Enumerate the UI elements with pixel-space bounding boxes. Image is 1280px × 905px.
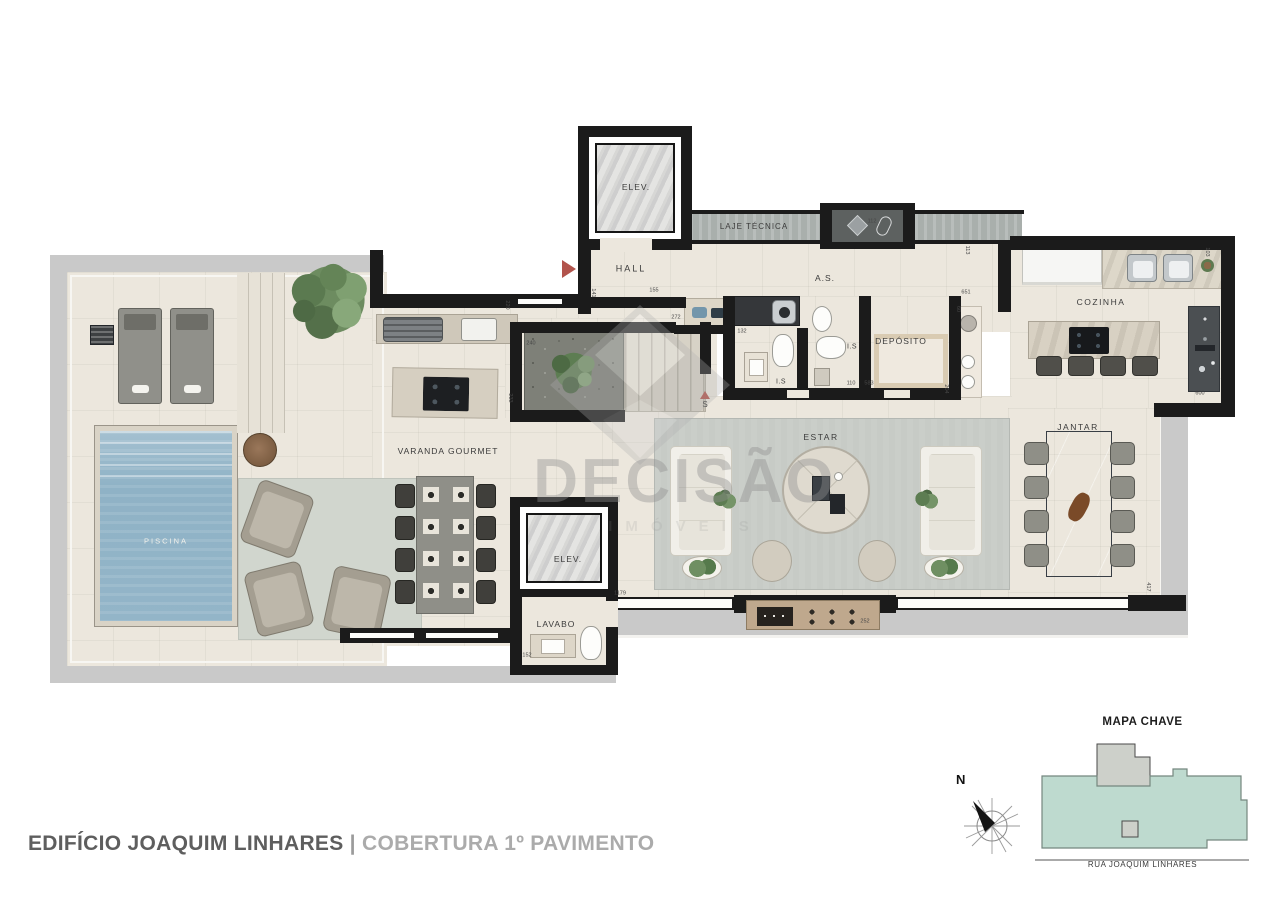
barbecue-grill (383, 317, 443, 342)
bar-stool (1132, 356, 1158, 376)
grill-counter (376, 314, 518, 344)
tall-cabinet (1188, 306, 1220, 392)
equipment-box (90, 325, 114, 345)
dining-chair (1110, 544, 1135, 567)
plan-title-building: EDIFÍCIO JOAQUIM LINHARES (28, 832, 344, 855)
wall (998, 240, 1011, 312)
dining-chair (1110, 476, 1135, 499)
kitchen-counter-marble (1102, 249, 1222, 289)
bathroom-sink (812, 306, 832, 332)
garden-plant-icon (538, 336, 612, 406)
keymap-drawing (1035, 736, 1250, 866)
elevator-lavabo-block (510, 497, 618, 675)
wall (723, 296, 735, 400)
armchair-cushion (252, 571, 306, 628)
toilet (580, 626, 602, 660)
sofa-plant (710, 488, 740, 512)
table-book (830, 494, 845, 514)
wall (370, 250, 383, 302)
shower-drain (814, 368, 830, 386)
wall (949, 296, 961, 400)
lavabo-vanity (530, 634, 576, 658)
dining-chair (1110, 442, 1135, 465)
wall (700, 322, 711, 374)
sofa-plant (912, 488, 942, 512)
gourmet-dining-table (416, 476, 474, 614)
plan-title: EDIFÍCIO JOAQUIM LINHARES | COBERTURA 1º… (28, 832, 654, 856)
armchair-cushion (248, 490, 306, 550)
floor-plant (682, 556, 722, 580)
dining-chair (1110, 510, 1135, 533)
table-book (812, 476, 830, 501)
elevator-cab (526, 513, 602, 583)
gourmet-sink (461, 318, 497, 341)
wall (510, 410, 625, 422)
toilet (772, 334, 794, 367)
lounger-pillow (124, 314, 156, 330)
dining-chair (476, 548, 496, 572)
floorplan-page: ELEV.LAJE TÉCNICAHALLA.S.I.SI.SDEPÓSITOC… (0, 0, 1280, 905)
dining-chair (1024, 442, 1049, 465)
dining-chair (395, 484, 415, 508)
sideboard-cups (803, 606, 865, 627)
boiler-icon (874, 214, 893, 237)
elevator-cab (595, 143, 675, 233)
centerpiece (1065, 490, 1093, 524)
lounger-handle (184, 385, 201, 393)
toilet (816, 336, 846, 359)
table-cup (834, 472, 843, 481)
side-table (243, 433, 277, 467)
wall (1128, 595, 1186, 611)
wall (1154, 403, 1235, 417)
stairs (624, 332, 706, 412)
armchair-cushion (330, 576, 383, 632)
window (516, 297, 564, 306)
wall (510, 322, 522, 422)
washing-machine (772, 300, 796, 324)
south-slab-band (610, 608, 1188, 638)
stairs-up-arrow-icon (700, 391, 710, 399)
dining-table-stone (1046, 431, 1112, 577)
tech-shaft (820, 203, 915, 249)
pouf (858, 540, 896, 582)
dining-chair (476, 580, 496, 604)
wall (723, 388, 961, 400)
kitchen-counter-white (1022, 249, 1102, 285)
kitchen-island (1028, 321, 1160, 359)
pouf (752, 540, 792, 582)
compass-rose-icon (952, 776, 1028, 860)
lounger-handle (132, 385, 149, 393)
wall (674, 325, 723, 334)
bar-stool (1068, 356, 1094, 376)
street-label: RUA JOAQUIM LINHARES (1035, 860, 1250, 869)
decor-plant (1201, 259, 1214, 272)
fixture-circle (961, 375, 975, 389)
door-gap (606, 601, 618, 627)
round-sink (960, 315, 977, 332)
tech-shaft-interior (832, 210, 903, 242)
entrance-arrow-icon (562, 260, 576, 278)
keymap-core-square (1122, 821, 1138, 837)
wall (510, 322, 676, 333)
floor-plant (924, 556, 964, 580)
dining-chair (1024, 544, 1049, 567)
kitchen-sink (1163, 254, 1193, 282)
east-slab-band (1158, 408, 1188, 610)
dining-chair (1024, 476, 1049, 499)
keymap-building-top (1097, 744, 1150, 786)
keymap-title: MAPA CHAVE (1035, 716, 1250, 728)
sun-lounger (170, 308, 214, 404)
gourmet-island (392, 367, 499, 419)
elevator-door-gap (600, 238, 652, 252)
bar-stool (1100, 356, 1126, 376)
wall (859, 296, 871, 400)
door-gap (884, 390, 910, 398)
dining-chair (395, 548, 415, 572)
plan-title-floor: COBERTURA 1º PAVIMENTO (362, 832, 654, 855)
sideboard (746, 600, 880, 630)
window (348, 631, 416, 640)
sliding-door (896, 597, 1130, 610)
pool-steps (100, 431, 232, 477)
fan-icon (847, 215, 868, 236)
dining-chair (395, 580, 415, 604)
sun-lounger (118, 308, 162, 404)
island-cooktop (1069, 327, 1109, 354)
sliding-door (614, 597, 734, 610)
bar-stool (1036, 356, 1062, 376)
plan-title-separator: | (350, 832, 356, 855)
dining-chair (1024, 510, 1049, 533)
storage-shelves (874, 334, 948, 388)
pool (95, 426, 237, 626)
wall (1221, 236, 1235, 417)
door-gap (787, 390, 809, 398)
dining-chair (476, 484, 496, 508)
kitchen-sink (1127, 254, 1157, 282)
sideboard-tray (757, 607, 793, 626)
elevator-shaft-top (578, 126, 692, 250)
dining-chair (395, 516, 415, 540)
terrace-slab-left (50, 255, 67, 683)
fixture-circle (961, 355, 975, 369)
wall (1010, 236, 1235, 250)
coffee-table (782, 446, 870, 534)
bathroom-vanity (744, 352, 768, 382)
laundry-basket (692, 307, 707, 318)
dining-chair (476, 516, 496, 540)
lounger-pillow (176, 314, 208, 330)
washer-counter (734, 296, 800, 326)
window (424, 631, 500, 640)
cooktop (423, 377, 470, 412)
wall (566, 297, 686, 308)
